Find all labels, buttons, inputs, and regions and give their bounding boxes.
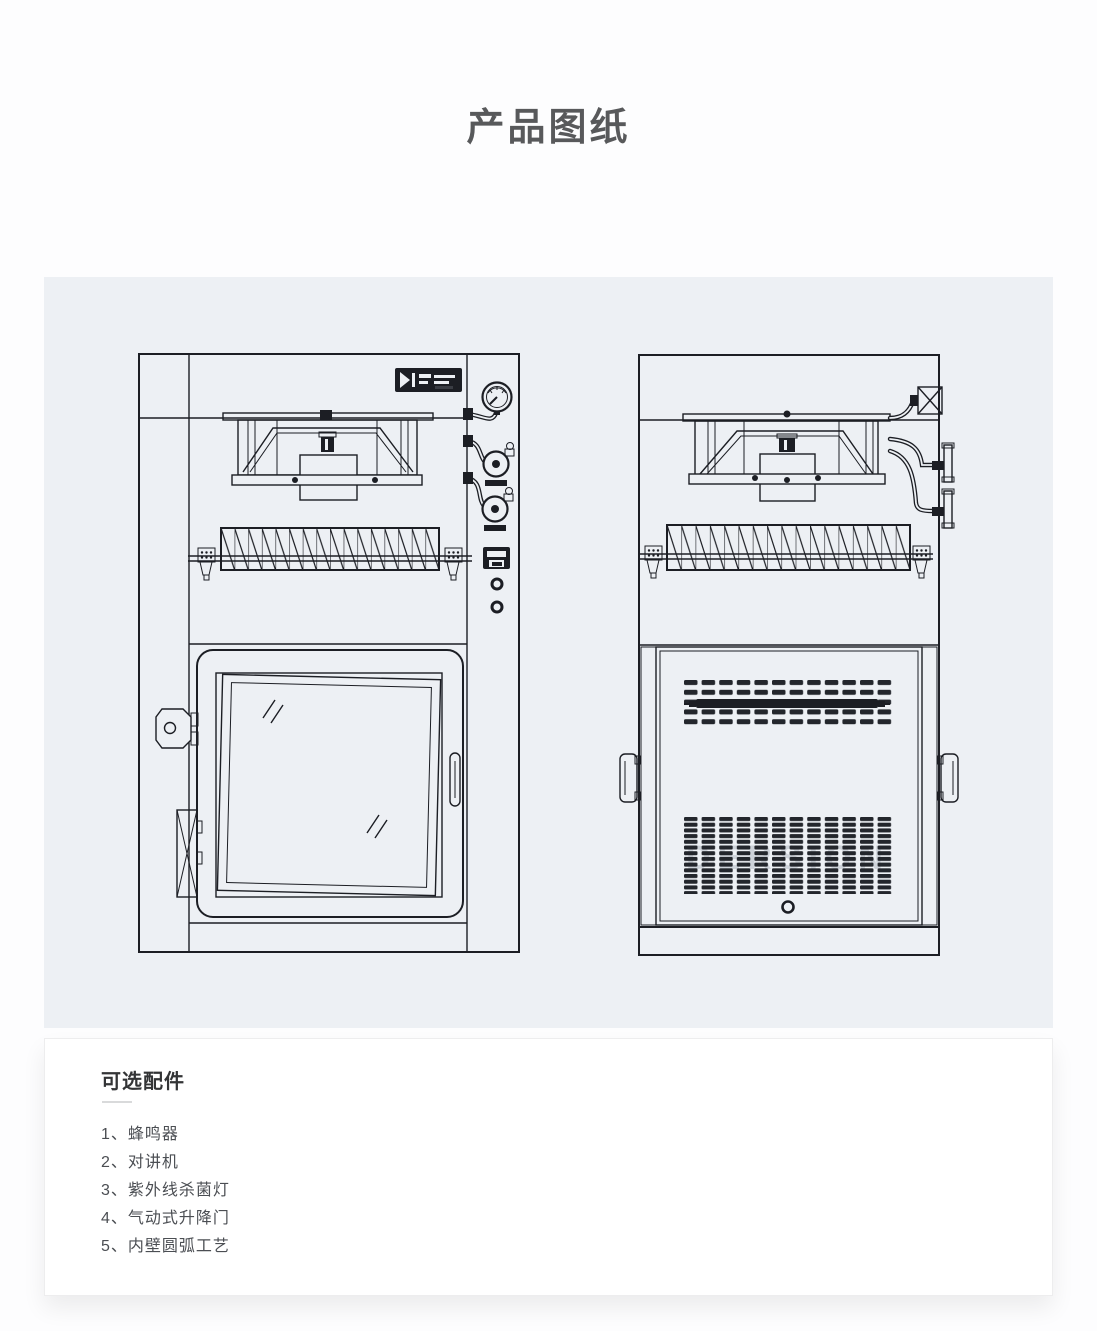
- rear-view-drawing: DERSION: [620, 355, 958, 955]
- button-1: [492, 579, 502, 589]
- rear-piping: [890, 401, 933, 511]
- accessories-list: 1、蜂鸣器 2、对讲机 3、紫外线杀菌灯 4、气动式升降门 5、内壁圆弧工艺: [101, 1121, 230, 1261]
- button-2: [492, 602, 502, 612]
- accessory-item: 3、紫外线杀菌灯: [101, 1177, 230, 1205]
- lock-hole: [783, 902, 794, 913]
- window-opening: [216, 673, 442, 897]
- fan-assembly-rear: [683, 411, 890, 502]
- side-handle-right: [938, 754, 958, 802]
- accessory-item: 5、内壁圆弧工艺: [101, 1233, 230, 1261]
- fan-assembly: [223, 410, 433, 500]
- page-title: 产品图纸: [0, 96, 1097, 151]
- vent-crossbar: [684, 699, 890, 708]
- accessories-heading: 可选配件: [101, 1065, 185, 1094]
- side-handle-left: [620, 754, 640, 802]
- accessory-item: 4、气动式升降门: [101, 1205, 230, 1233]
- heading-divider: [102, 1101, 132, 1103]
- brand-logo: [395, 368, 462, 392]
- vent-grid-lower: [683, 816, 894, 894]
- valve-knob-1: [484, 443, 515, 487]
- door-assembly: [156, 650, 463, 917]
- pipe-connector-2: [932, 489, 954, 528]
- damper-valve-icon: [910, 387, 942, 414]
- hepa-filter-front: [188, 528, 472, 580]
- glass-reflection-mark: [263, 700, 283, 723]
- hepa-filter-rear: [640, 525, 933, 578]
- power-switch: [483, 547, 510, 569]
- front-view-drawing: [139, 354, 519, 952]
- door-hinge: [156, 709, 198, 748]
- accessories-card: 可选配件 1、蜂鸣器 2、对讲机 3、紫外线杀菌灯 4、气动式升降门 5、内壁圆…: [44, 1038, 1053, 1296]
- pipe-connector-1: [932, 443, 954, 482]
- drawing-panel: DERSION: [44, 277, 1053, 1028]
- back-panel: DERSION: [620, 647, 958, 925]
- glass-reflection-mark: [367, 815, 387, 838]
- glass-pane: [217, 674, 440, 895]
- door-handle: [450, 753, 460, 806]
- valve-knob-2: [483, 488, 514, 532]
- accessory-item: 1、蜂鸣器: [101, 1121, 230, 1149]
- pressure-gauge-icon: [483, 383, 512, 416]
- accessory-item: 2、对讲机: [101, 1149, 230, 1177]
- technical-drawing: DERSION: [44, 277, 1053, 1028]
